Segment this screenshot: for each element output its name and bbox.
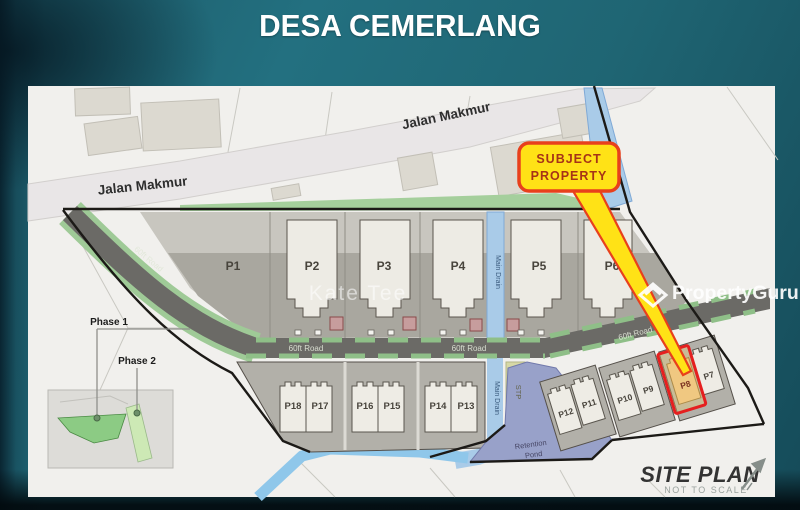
stp-label: STP [514,385,523,400]
phase2-label: Phase 2 [118,356,156,367]
plot-label-p13: P13 [458,401,475,412]
plot-label-p14: P14 [430,401,448,412]
plot-label-p17: P17 [312,401,329,412]
plot-label-p15: P15 [384,401,402,412]
lower-buildings [280,382,477,432]
main-drain-label-lower: Main Drain [493,381,500,415]
siteplan-subtitle: NOT TO SCALE [664,485,748,495]
plot-label-p2: P2 [305,259,320,273]
plot-label-p3: P3 [377,259,392,273]
plot-label-p4: P4 [451,259,466,273]
brand-watermark-text: PropertyGuru [672,282,799,304]
road-label-60ft-1: 60ft Road [289,344,324,353]
plot-label-p5: P5 [532,259,547,273]
callout-line1: SUBJECT [536,152,601,166]
slide-background: DESA CEMERLANG [0,0,800,510]
agent-watermark: Kate Tee [309,282,408,305]
plot-label-p18: P18 [285,401,302,412]
main-drain-label-upper: Main Drain [494,255,501,289]
callout-line2: PROPERTY [531,169,608,183]
plot-label-p1: P1 [226,259,241,273]
road-label-60ft-2: 60ft Road [452,344,487,353]
phase1-label: Phase 1 [90,317,128,328]
siteplan-title: SITE PLAN [640,462,760,487]
callout-box [519,143,619,191]
site-plan-map: P12 P11 P10 P9 P8 P7 [0,0,800,510]
plot-label-p16: P16 [357,401,374,412]
